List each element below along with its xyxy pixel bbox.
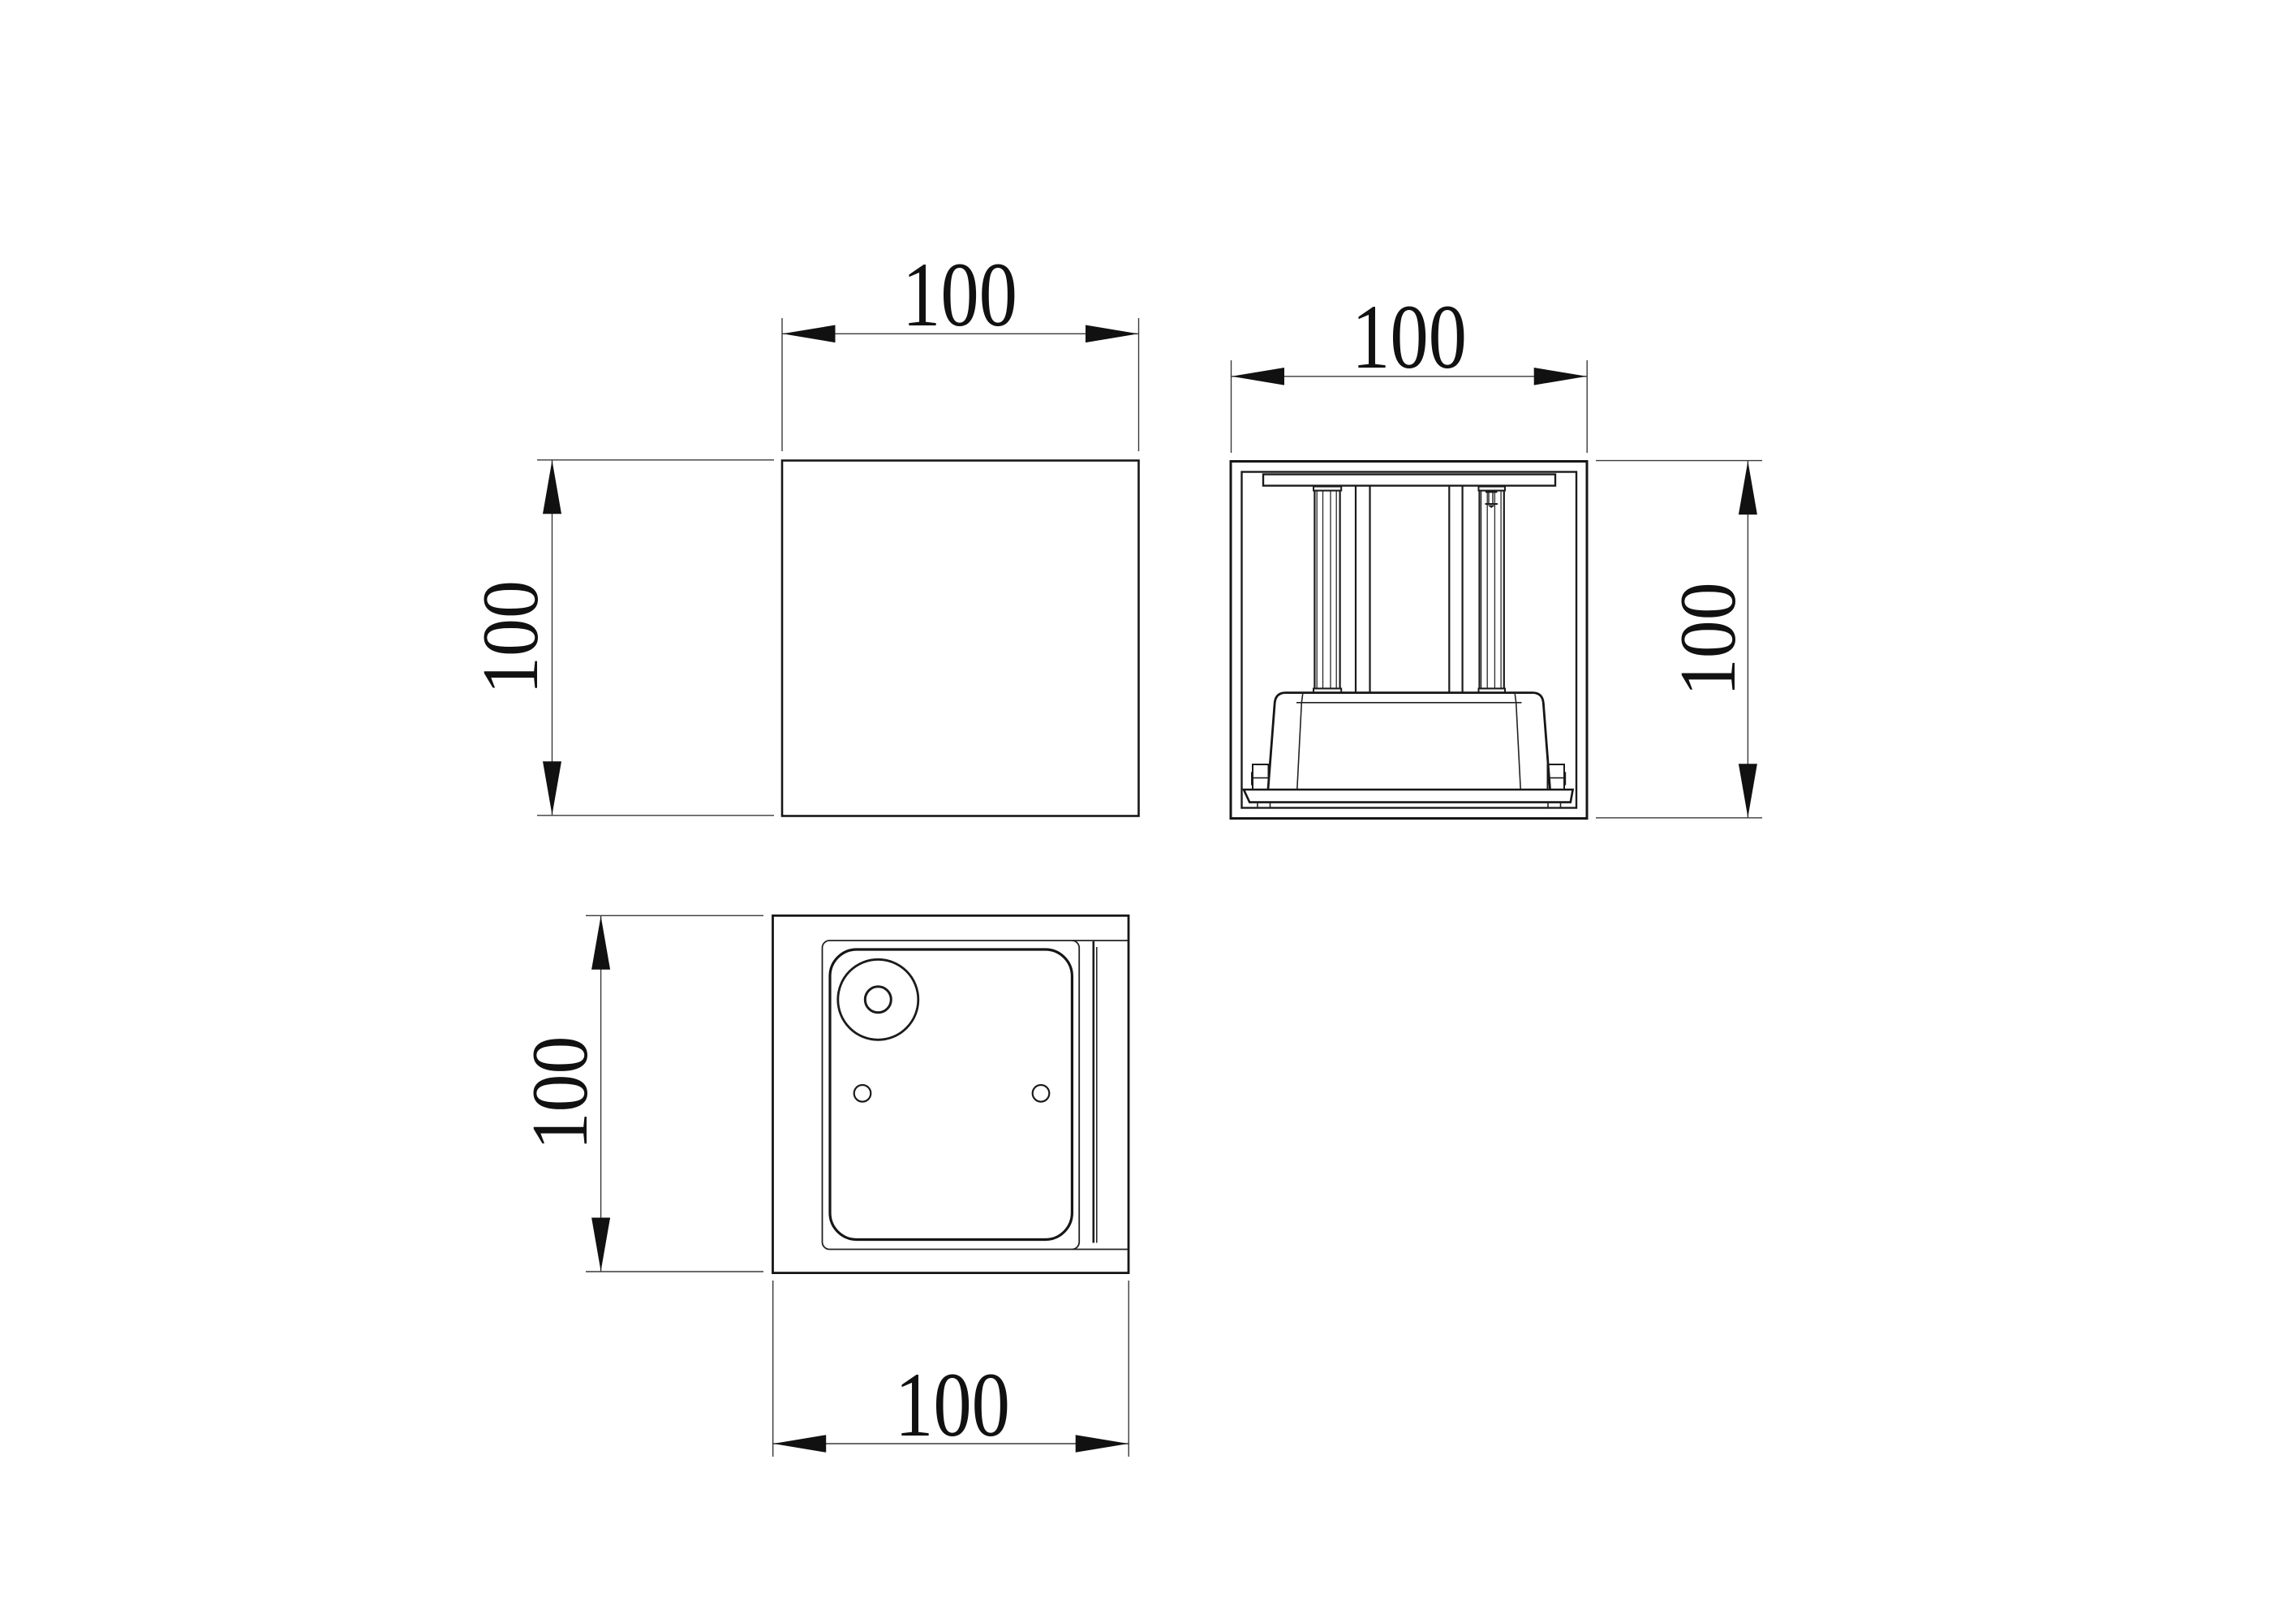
- svg-text:100: 100: [516, 1036, 604, 1151]
- svg-text:100: 100: [1664, 582, 1752, 696]
- svg-text:100: 100: [895, 1354, 1010, 1456]
- svg-text:100: 100: [1352, 286, 1467, 388]
- svg-text:100: 100: [902, 244, 1017, 346]
- svg-text:100: 100: [467, 580, 555, 695]
